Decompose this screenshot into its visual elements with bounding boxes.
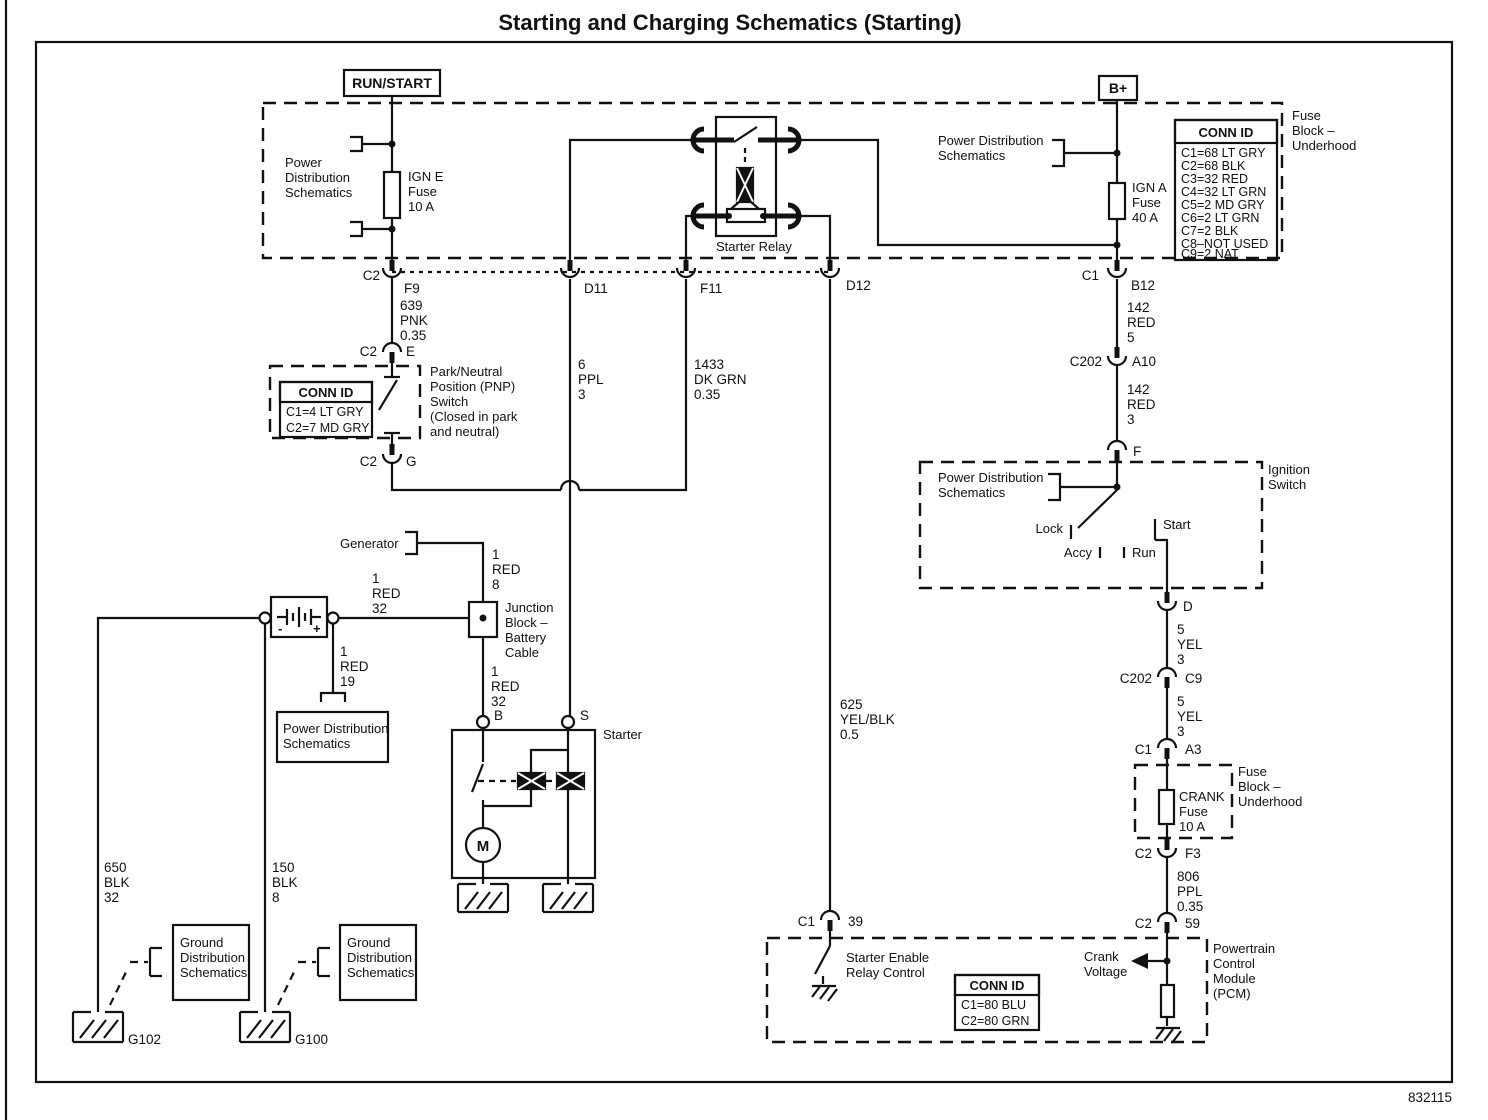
connector-label: C1 xyxy=(1082,268,1099,283)
pnp-switch-label: Position (PNP) xyxy=(430,379,515,394)
ground-distribution-ref: Distribution xyxy=(180,950,245,965)
connector-symbol-c9 xyxy=(1158,668,1176,677)
wire-label-806: 0.35 xyxy=(1177,899,1203,914)
ground-label-g100: G100 xyxy=(295,1032,328,1047)
ignition-feed-column: 142 RED 5 C202 A10 142 RED 3 F xyxy=(1070,279,1156,461)
wire-label-5yel-b: 3 xyxy=(1177,724,1185,739)
conn-id-table-pnp: CONN ID C1=4 LT GRY C2=7 MD GRY xyxy=(280,382,372,437)
starter-enable-label: Starter Enable xyxy=(846,950,929,965)
power-distribution-ref: Power Distribution xyxy=(283,721,389,736)
ign-e-fuse-label: 10 A xyxy=(408,199,434,214)
pnp-switch-label: Park/Neutral xyxy=(430,364,502,379)
starter-box xyxy=(452,730,595,878)
connector-label: B12 xyxy=(1131,278,1155,293)
conn-id-header: CONN ID xyxy=(1199,125,1254,140)
power-distribution-ref: Distribution xyxy=(285,170,350,185)
connector-symbol-39 xyxy=(821,911,839,920)
power-distribution-ref: Power xyxy=(285,155,323,170)
wire-label-639: PNK xyxy=(400,313,428,328)
crank-signal-column: D 5 YEL 3 C202 C9 5 YEL 3 C1 A3 CRANK Fu… xyxy=(1120,592,1303,933)
wire-label-1red8: 1 xyxy=(492,547,500,562)
pcm-label: (PCM) xyxy=(1213,986,1251,1001)
ign-e-fuse-label: Fuse xyxy=(408,184,437,199)
connector-symbol-g xyxy=(383,454,401,463)
pnp-switch-label: Switch xyxy=(430,394,468,409)
relay-wiring xyxy=(570,140,1117,264)
wire-label-1red32a: 1 xyxy=(372,571,380,586)
pnp-switch-label: and neutral) xyxy=(430,424,499,439)
conn-id-header: CONN ID xyxy=(299,385,354,400)
connector-label: F xyxy=(1133,444,1141,459)
crank-fuse-label: CRANK xyxy=(1179,789,1225,804)
connector-label: F9 xyxy=(404,281,420,296)
wire-label-639: 639 xyxy=(400,298,423,313)
wire-label-5yel-b: 5 xyxy=(1177,694,1185,709)
fuse-block-label: Underhood xyxy=(1292,138,1356,153)
conn-id-row: C2=7 MD GRY xyxy=(286,421,370,435)
crank-fuse-symbol xyxy=(1159,790,1174,824)
starting-charging-schematic: Starting and Charging Schematics (Starti… xyxy=(0,0,1488,1120)
crank-voltage-label: Voltage xyxy=(1084,964,1127,979)
ground-distribution-ref: Schematics xyxy=(180,965,248,980)
crank-voltage-label: Crank xyxy=(1084,949,1119,964)
conn-id-row: C3=32 RED xyxy=(1181,172,1248,186)
connector-label: C2 xyxy=(1135,846,1152,861)
conn-id-row: C9=2 NAT xyxy=(1181,247,1239,261)
connector-label: C2 xyxy=(360,454,377,469)
connector-label: C202 xyxy=(1120,671,1152,686)
ground-distribution-ref: Ground xyxy=(347,935,390,950)
offpage-bracket xyxy=(321,693,345,702)
schematic-page: Starting and Charging Schematics (Starti… xyxy=(0,0,1488,1120)
ign-a-fuse-label: IGN A xyxy=(1132,180,1167,195)
ground-label-g102: G102 xyxy=(128,1032,161,1047)
junction-block-label: Battery xyxy=(505,630,547,645)
wire-label-625: 625 xyxy=(840,697,863,712)
b-plus-label: B+ xyxy=(1109,80,1127,96)
motor-label: M xyxy=(477,838,490,855)
power-distribution-ref: Schematics xyxy=(285,185,353,200)
wire-label-6ppl: 6 xyxy=(578,357,586,372)
power-distribution-ref: Schematics xyxy=(938,148,1006,163)
document-number: 832115 xyxy=(1408,1090,1452,1105)
pcm-label: Control xyxy=(1213,956,1255,971)
starter-relay: Starter Relay xyxy=(693,117,799,254)
wire-label-150: BLK xyxy=(272,875,298,890)
pcm-resistor-symbol xyxy=(1161,985,1174,1017)
connector-label: A3 xyxy=(1185,742,1202,757)
conn-id-row: C1=80 BLU xyxy=(961,998,1026,1012)
ignition-switch: Ignition Switch Power Distribution Schem… xyxy=(920,456,1310,600)
conn-id-row: C6=2 LT GRN xyxy=(1181,211,1259,225)
connector-label: 59 xyxy=(1185,916,1200,931)
connector-label: C1 xyxy=(798,914,815,929)
power-distribution-ref: Power Distribution xyxy=(938,133,1044,148)
wire-label-142b: RED xyxy=(1127,397,1156,412)
wire-label-142b: 3 xyxy=(1127,412,1135,427)
wire-label-1red19: 1 xyxy=(340,644,348,659)
ignition-position-run: Run xyxy=(1132,545,1156,560)
ignition-switch-label: Switch xyxy=(1268,477,1306,492)
offpage-bracket xyxy=(150,948,162,976)
conn-id-row: C2=68 BLK xyxy=(1181,159,1246,173)
ignition-position-start: Start xyxy=(1163,517,1191,532)
wire-label-142a: 5 xyxy=(1127,330,1135,345)
connector-symbol-59 xyxy=(1158,913,1176,922)
terminal-label-b: B xyxy=(494,708,503,723)
offpage-bracket xyxy=(405,532,417,554)
connector-label: 39 xyxy=(848,914,863,929)
wire-label-1433: 0.35 xyxy=(694,387,720,402)
wire-label-1red32a: 32 xyxy=(372,601,387,616)
junction-block-label: Block – xyxy=(505,615,548,630)
wire-label-1red32b: 32 xyxy=(491,694,506,709)
connector-label: E xyxy=(406,344,415,359)
wire-label-650: 32 xyxy=(104,890,119,905)
starter-label: Starter xyxy=(603,727,643,742)
starter-enable-label: Relay Control xyxy=(846,965,925,980)
wire-label-650: 650 xyxy=(104,860,127,875)
generator-label: Generator xyxy=(340,536,399,551)
wire-label-1red19: 19 xyxy=(340,674,355,689)
wire-label-6ppl: 3 xyxy=(578,387,586,402)
battery-branch: Generator 1 RED 8 Junction Block – Batte… xyxy=(98,532,553,1012)
connector-label: C2 xyxy=(363,268,380,283)
conn-id-table-pcm: CONN ID C1=80 BLU C2=80 GRN xyxy=(955,975,1039,1030)
wire-label-1red19: RED xyxy=(340,659,369,674)
connector-symbol-a3 xyxy=(1158,739,1176,748)
wire-label-5yel-a: YEL xyxy=(1177,637,1203,652)
wire-label-142a: 142 xyxy=(1127,300,1150,315)
starter-terminal-b xyxy=(477,716,489,728)
battery-positive-sign: + xyxy=(313,621,321,636)
ignition-position-accy: Accy xyxy=(1064,545,1093,560)
ign-e-fuse-label: IGN E xyxy=(408,169,444,184)
wire-label-1red32b: RED xyxy=(491,679,520,694)
ground-distribution-ref: Ground xyxy=(180,935,223,950)
crank-fuse-label: 10 A xyxy=(1179,819,1205,834)
pnp-switch-label: (Closed in park xyxy=(430,409,518,424)
fuse-block-label: Fuse xyxy=(1292,108,1321,123)
connector-label: C202 xyxy=(1070,354,1102,369)
junction-block-label: Cable xyxy=(505,645,539,660)
conn-id-row: C5=2 MD GRY xyxy=(1181,198,1265,212)
offpage-bracket xyxy=(1052,140,1064,166)
wire-label-142a: RED xyxy=(1127,315,1156,330)
wire-label-625: 0.5 xyxy=(840,727,859,742)
conn-id-row: C4=32 LT GRN xyxy=(1181,185,1266,199)
wire-label-6ppl: PPL xyxy=(578,372,604,387)
fuse-block-label: Block – xyxy=(1238,779,1281,794)
fuse-block-label: Fuse xyxy=(1238,764,1267,779)
connector-label: C2 xyxy=(1135,916,1152,931)
offpage-bracket xyxy=(350,222,362,236)
offpage-bracket xyxy=(350,137,362,151)
page-title: Starting and Charging Schematics (Starti… xyxy=(498,10,961,35)
conn-id-row: C1=4 LT GRY xyxy=(286,405,364,419)
wire-label-150: 8 xyxy=(272,890,280,905)
connector-label: A10 xyxy=(1132,354,1156,369)
relay-resistor-symbol xyxy=(727,209,765,222)
ignition-position-lock: Lock xyxy=(1036,521,1064,536)
wire-label-1red32a: RED xyxy=(372,586,401,601)
connector-label: D12 xyxy=(846,278,871,293)
wire-label-806: 806 xyxy=(1177,869,1200,884)
conn-id-table-underhood: CONN ID C1=68 LT GRY C2=68 BLK C3=32 RED… xyxy=(1175,120,1277,261)
conn-id-row: C1=68 LT GRY xyxy=(1181,146,1266,160)
conn-id-row: C7=2 BLK xyxy=(1181,224,1239,238)
wire-label-5yel-a: 5 xyxy=(1177,622,1185,637)
offpage-bracket xyxy=(318,948,330,976)
wire-label-5yel-a: 3 xyxy=(1177,652,1185,667)
connector-label: G xyxy=(406,454,417,469)
ground-symbol-small xyxy=(1156,1027,1181,1043)
ign-a-fuse-symbol xyxy=(1109,183,1125,219)
battery-terminal xyxy=(260,613,271,624)
connector-label: D xyxy=(1183,599,1193,614)
wire-label-1red8: RED xyxy=(492,562,521,577)
wire-label-150: 150 xyxy=(272,860,295,875)
wire-label-1red8: 8 xyxy=(492,577,500,592)
wire-label-1red32b: 1 xyxy=(491,664,499,679)
ign-e-fuse-symbol xyxy=(384,172,400,218)
ign-a-fuse-label: Fuse xyxy=(1132,195,1161,210)
wire-label-5yel-b: YEL xyxy=(1177,709,1203,724)
pnp-switch-branch: 639 PNK 0.35 C2 E Park/Neutral Position … xyxy=(270,277,686,490)
offpage-bracket xyxy=(1048,474,1060,500)
crank-fuse-label: Fuse xyxy=(1179,804,1208,819)
pcm-label: Module xyxy=(1213,971,1256,986)
inline-connector-row: C2 F9 D11 F11 D12 C1 B12 xyxy=(363,260,1155,296)
wire-label-1433: 1433 xyxy=(694,357,724,372)
connector-label: C9 xyxy=(1185,671,1202,686)
ground-distribution-ref: Distribution xyxy=(347,950,412,965)
fuse-block-label: Block – xyxy=(1292,123,1335,138)
wire-label-1433: DK GRN xyxy=(694,372,747,387)
fuse-block-label: Underhood xyxy=(1238,794,1302,809)
starter: B S Starter M xyxy=(452,708,643,912)
run-start-label: RUN/START xyxy=(352,75,432,91)
conn-id-header: CONN ID xyxy=(970,978,1025,993)
power-distribution-ref: Schematics xyxy=(938,485,1006,500)
ign-a-fuse-label: 40 A xyxy=(1132,210,1158,225)
terminal-label-s: S xyxy=(580,708,589,723)
connector-label: F3 xyxy=(1185,846,1201,861)
connector-symbol-e xyxy=(383,343,401,352)
wire-label-142b: 142 xyxy=(1127,382,1150,397)
starter-relay-label: Starter Relay xyxy=(716,239,792,254)
wire-label-639: 0.35 xyxy=(400,328,426,343)
conn-id-row: C2=80 GRN xyxy=(961,1014,1029,1028)
ignition-switch-label: Ignition xyxy=(1268,462,1310,477)
wire-label-806: PPL xyxy=(1177,884,1203,899)
wire-label-625: YEL/BLK xyxy=(840,712,895,727)
starter-terminal-s xyxy=(562,716,574,728)
ground-g100: G100 Ground Distribution Schematics xyxy=(240,925,416,1047)
crank-voltage-arrow xyxy=(1131,953,1148,969)
battery-negative-sign: - xyxy=(278,621,282,636)
ground-distribution-ref: Schematics xyxy=(347,965,415,980)
battery-terminal xyxy=(328,613,339,624)
connector-label: C2 xyxy=(360,344,377,359)
ground-g102: G102 Ground Distribution Schematics xyxy=(73,925,249,1047)
connector-label: F11 xyxy=(700,281,722,296)
pcm-label: Powertrain xyxy=(1213,941,1275,956)
ground-symbol-small xyxy=(812,985,837,1001)
connector-label: C1 xyxy=(1135,742,1152,757)
power-distribution-ref: Power Distribution xyxy=(938,470,1044,485)
connector-label: D11 xyxy=(584,281,608,296)
junction-block-label: Junction xyxy=(505,600,553,615)
fuse-block-underhood: Fuse Block – Underhood RUN/START Power D… xyxy=(263,70,1356,264)
power-distribution-ref: Schematics xyxy=(283,736,351,751)
wire-label-650: BLK xyxy=(104,875,130,890)
connector-symbol-f xyxy=(1108,441,1126,450)
